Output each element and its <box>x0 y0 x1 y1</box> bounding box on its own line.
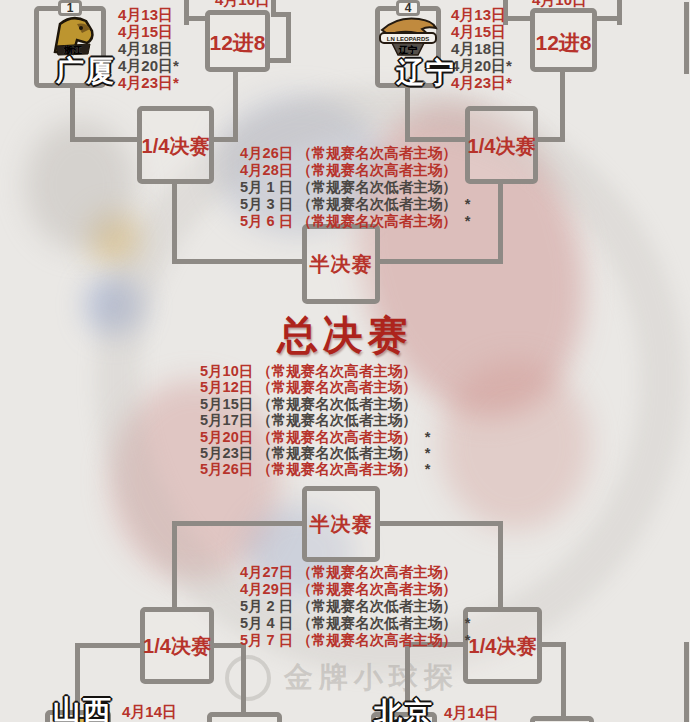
schedule-star: * <box>465 615 471 631</box>
schedule-venue: （常规赛名次低者主场） <box>257 445 417 461</box>
date-list-top-right: 4月13日4月15日4月18日4月20日*4月23日* <box>451 6 512 91</box>
schedule-date: 5月20日 <box>200 429 253 445</box>
schedule-star: * <box>425 461 431 477</box>
schedule-line: 5月 2 日（常规赛名次低者主场） <box>240 598 470 615</box>
schedule-date: 5月26日 <box>200 461 253 477</box>
connector-line <box>172 521 177 609</box>
playoff-bracket: 金牌小球探 1 4 <box>0 0 690 722</box>
schedule-date: 5月 6 日 <box>240 213 293 229</box>
schedule-venue: （常规赛名次高者主场） <box>257 363 417 379</box>
final-schedule: 5月10日（常规赛名次高者主场）5月12日（常规赛名次高者主场）5月15日（常规… <box>200 363 430 478</box>
connector-line <box>233 70 238 142</box>
connector-line <box>380 521 503 526</box>
connector-line <box>270 58 291 63</box>
schedule-line: 4月26日（常规赛名次高者主场） <box>240 145 470 162</box>
schedule-star: * <box>465 213 471 229</box>
round-label-qf-bottom-left: 1/4决赛 <box>140 633 214 660</box>
connector-line <box>380 259 503 264</box>
liaoning-leopards-logo: LN LEOPARDS 辽宁 <box>377 12 439 58</box>
connector-line <box>70 88 75 142</box>
schedule-star: * <box>425 445 431 461</box>
schedule-star: * <box>465 196 471 212</box>
schedule-venue: （常规赛名次低者主场） <box>297 615 457 631</box>
schedule-venue: （常规赛名次高者主场） <box>257 429 417 445</box>
schedule-line: 5月 4 日（常规赛名次低者主场）* <box>240 615 470 632</box>
connector-line <box>184 16 205 21</box>
schedule-date: 4月28日 <box>240 162 293 178</box>
connector-line <box>617 0 622 25</box>
schedule-date: 4月27日 <box>240 564 293 580</box>
connector-line <box>597 16 622 21</box>
schedule-venue: （常规赛名次高者主场） <box>297 632 457 648</box>
schedule-venue: （常规赛名次低者主场） <box>297 179 457 195</box>
start-date-bottom-right: 4月14日 <box>444 704 499 722</box>
schedule-date: 5月 7 日 <box>240 632 293 648</box>
date-line: 4月18日 <box>451 40 512 57</box>
schedule-date: 5月 3 日 <box>240 196 293 212</box>
round-label-sf-bottom: 半决赛 <box>302 511 380 538</box>
schedule-date: 5月23日 <box>200 445 253 461</box>
schedule-date: 5月12日 <box>200 379 253 395</box>
connector-line <box>560 70 565 142</box>
team-name-guangsha: 广厦 <box>56 52 116 90</box>
schedule-venue: （常规赛名次低者主场） <box>297 598 457 614</box>
schedule-line: 5月12日（常规赛名次高者主场） <box>200 379 430 395</box>
schedule-date: 4月26日 <box>240 145 293 161</box>
clipped-date-top-right: 4月10日 <box>532 0 587 10</box>
connector-line <box>684 2 689 74</box>
schedule-star: * <box>465 632 471 648</box>
schedule-venue: （常规赛名次高者主场） <box>297 564 457 580</box>
connector-line <box>684 642 689 722</box>
date-line: 4月15日 <box>451 23 512 40</box>
schedule-venue: （常规赛名次高者主场） <box>257 379 417 395</box>
svg-text:LN LEOPARDS: LN LEOPARDS <box>387 36 430 42</box>
schedule-line: 4月29日（常规赛名次高者主场） <box>240 581 470 598</box>
round-label-qf-bottom-right: 1/4决赛 <box>463 633 542 660</box>
date-line: 4月18日 <box>118 40 179 57</box>
schedule-line: 4月28日（常规赛名次高者主场） <box>240 162 470 179</box>
date-line: 4月20日* <box>118 57 179 74</box>
connector-line <box>70 137 137 142</box>
schedule-line: 5月 7 日（常规赛名次高者主场）* <box>240 632 470 649</box>
schedule-line: 5月 3 日（常规赛名次低者主场）* <box>240 196 470 213</box>
date-line: 4月13日 <box>118 6 179 23</box>
schedule-line: 4月27日（常规赛名次高者主场） <box>240 564 470 581</box>
schedule-line: 5月26日（常规赛名次高者主场）* <box>200 461 430 477</box>
semifinal-top-schedule: 4月26日（常规赛名次高者主场）4月28日（常规赛名次高者主场）5月 1 日（常… <box>240 145 470 230</box>
connector-line <box>172 521 302 526</box>
connector-line <box>172 184 177 264</box>
semifinal-bottom-schedule: 4月27日（常规赛名次高者主场）4月29日（常规赛名次高者主场）5月 2 日（常… <box>240 564 470 649</box>
team-name-liaoning: 辽宁 <box>396 54 456 92</box>
round-label-12-8-left: 12进8 <box>205 29 270 57</box>
round-label-sf-top: 半决赛 <box>302 251 380 278</box>
date-line: 4月13日 <box>451 6 512 23</box>
schedule-line: 5月10日（常规赛名次高者主场） <box>200 363 430 379</box>
schedule-date: 4月29日 <box>240 581 293 597</box>
site-watermark-logo <box>225 655 271 701</box>
round-label-qf-top-right: 1/4决赛 <box>465 133 538 160</box>
schedule-venue: （常规赛名次低者主场） <box>257 412 417 428</box>
schedule-venue: （常规赛名次高者主场） <box>257 461 417 477</box>
connector-line <box>75 643 142 648</box>
cutoff-box-bottom-left <box>207 712 282 722</box>
schedule-venue: （常规赛名次低者主场） <box>297 196 457 212</box>
connector-line <box>498 521 503 609</box>
connector-line <box>213 137 238 142</box>
final-title: 总决赛 <box>0 308 690 363</box>
schedule-venue: （常规赛名次高者主场） <box>297 145 457 161</box>
schedule-date: 5月 1 日 <box>240 179 293 195</box>
date-list-top-left: 4月13日4月15日4月18日4月20日*4月23日* <box>118 6 179 91</box>
round-label-12-8-right: 12进8 <box>530 29 597 57</box>
connector-line <box>286 12 291 62</box>
date-line: 4月23日* <box>451 74 512 91</box>
site-watermark-text: 金牌小球探 <box>284 658 459 698</box>
date-line: 4月20日* <box>451 57 512 74</box>
connector-line <box>241 643 246 713</box>
schedule-venue: （常规赛名次低者主场） <box>257 396 417 412</box>
connector-line <box>172 259 302 264</box>
round-label-qf-top-left: 1/4决赛 <box>137 133 214 160</box>
date-line: 4月15日 <box>118 23 179 40</box>
date-line: 4月23日* <box>118 74 179 91</box>
schedule-date: 5月 2 日 <box>240 598 293 614</box>
schedule-line: 5月20日（常规赛名次高者主场）* <box>200 429 430 445</box>
team-name-shanxi: 山西 <box>53 692 113 722</box>
schedule-line: 5月15日（常规赛名次低者主场） <box>200 396 430 412</box>
schedule-line: 5月 1 日（常规赛名次低者主场） <box>240 179 470 196</box>
schedule-date: 5月10日 <box>200 363 253 379</box>
schedule-venue: （常规赛名次高者主场） <box>297 581 457 597</box>
schedule-line: 5月17日（常规赛名次低者主场） <box>200 412 430 428</box>
connector-line <box>498 184 503 264</box>
schedule-date: 5月 4 日 <box>240 615 293 631</box>
clipped-date-top-left: 4月10日 <box>215 0 270 10</box>
start-date-bottom-left: 4月14日 <box>122 703 177 722</box>
connector-line <box>561 642 566 718</box>
schedule-line: 5月23日（常规赛名次低者主场）* <box>200 445 430 461</box>
connector-line <box>184 0 189 25</box>
cutoff-box-bottom-right <box>530 716 594 722</box>
schedule-venue: （常规赛名次高者主场） <box>297 213 457 229</box>
connector-line <box>538 137 565 142</box>
connector-line <box>405 88 410 142</box>
connector-line <box>405 137 465 142</box>
schedule-venue: （常规赛名次高者主场） <box>297 162 457 178</box>
schedule-date: 5月15日 <box>200 396 253 412</box>
schedule-date: 5月17日 <box>200 412 253 428</box>
schedule-line: 5月 6 日（常规赛名次高者主场）* <box>240 213 470 230</box>
team-name-beijing: 北京 <box>374 694 434 722</box>
schedule-star: * <box>425 429 431 445</box>
